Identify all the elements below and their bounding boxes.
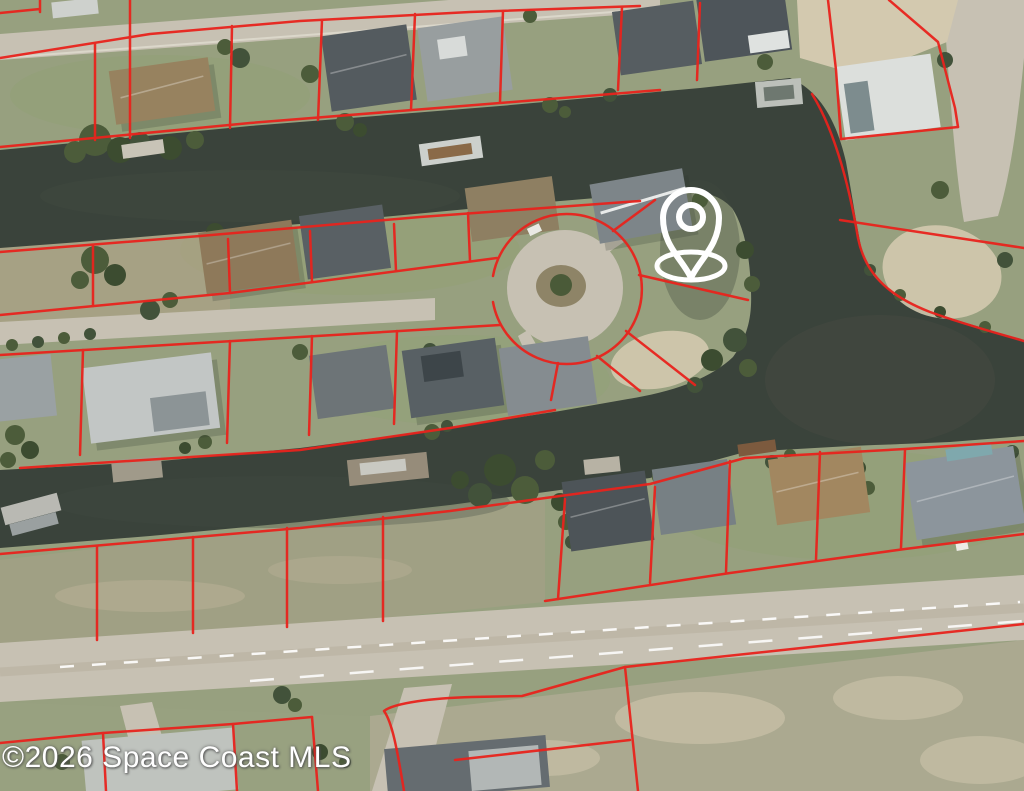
map-canvas [0, 0, 1024, 791]
aerial-parcel-map: ©2026 Space Coast MLS [0, 0, 1024, 791]
watermark: ©2026 Space Coast MLS [2, 741, 351, 775]
